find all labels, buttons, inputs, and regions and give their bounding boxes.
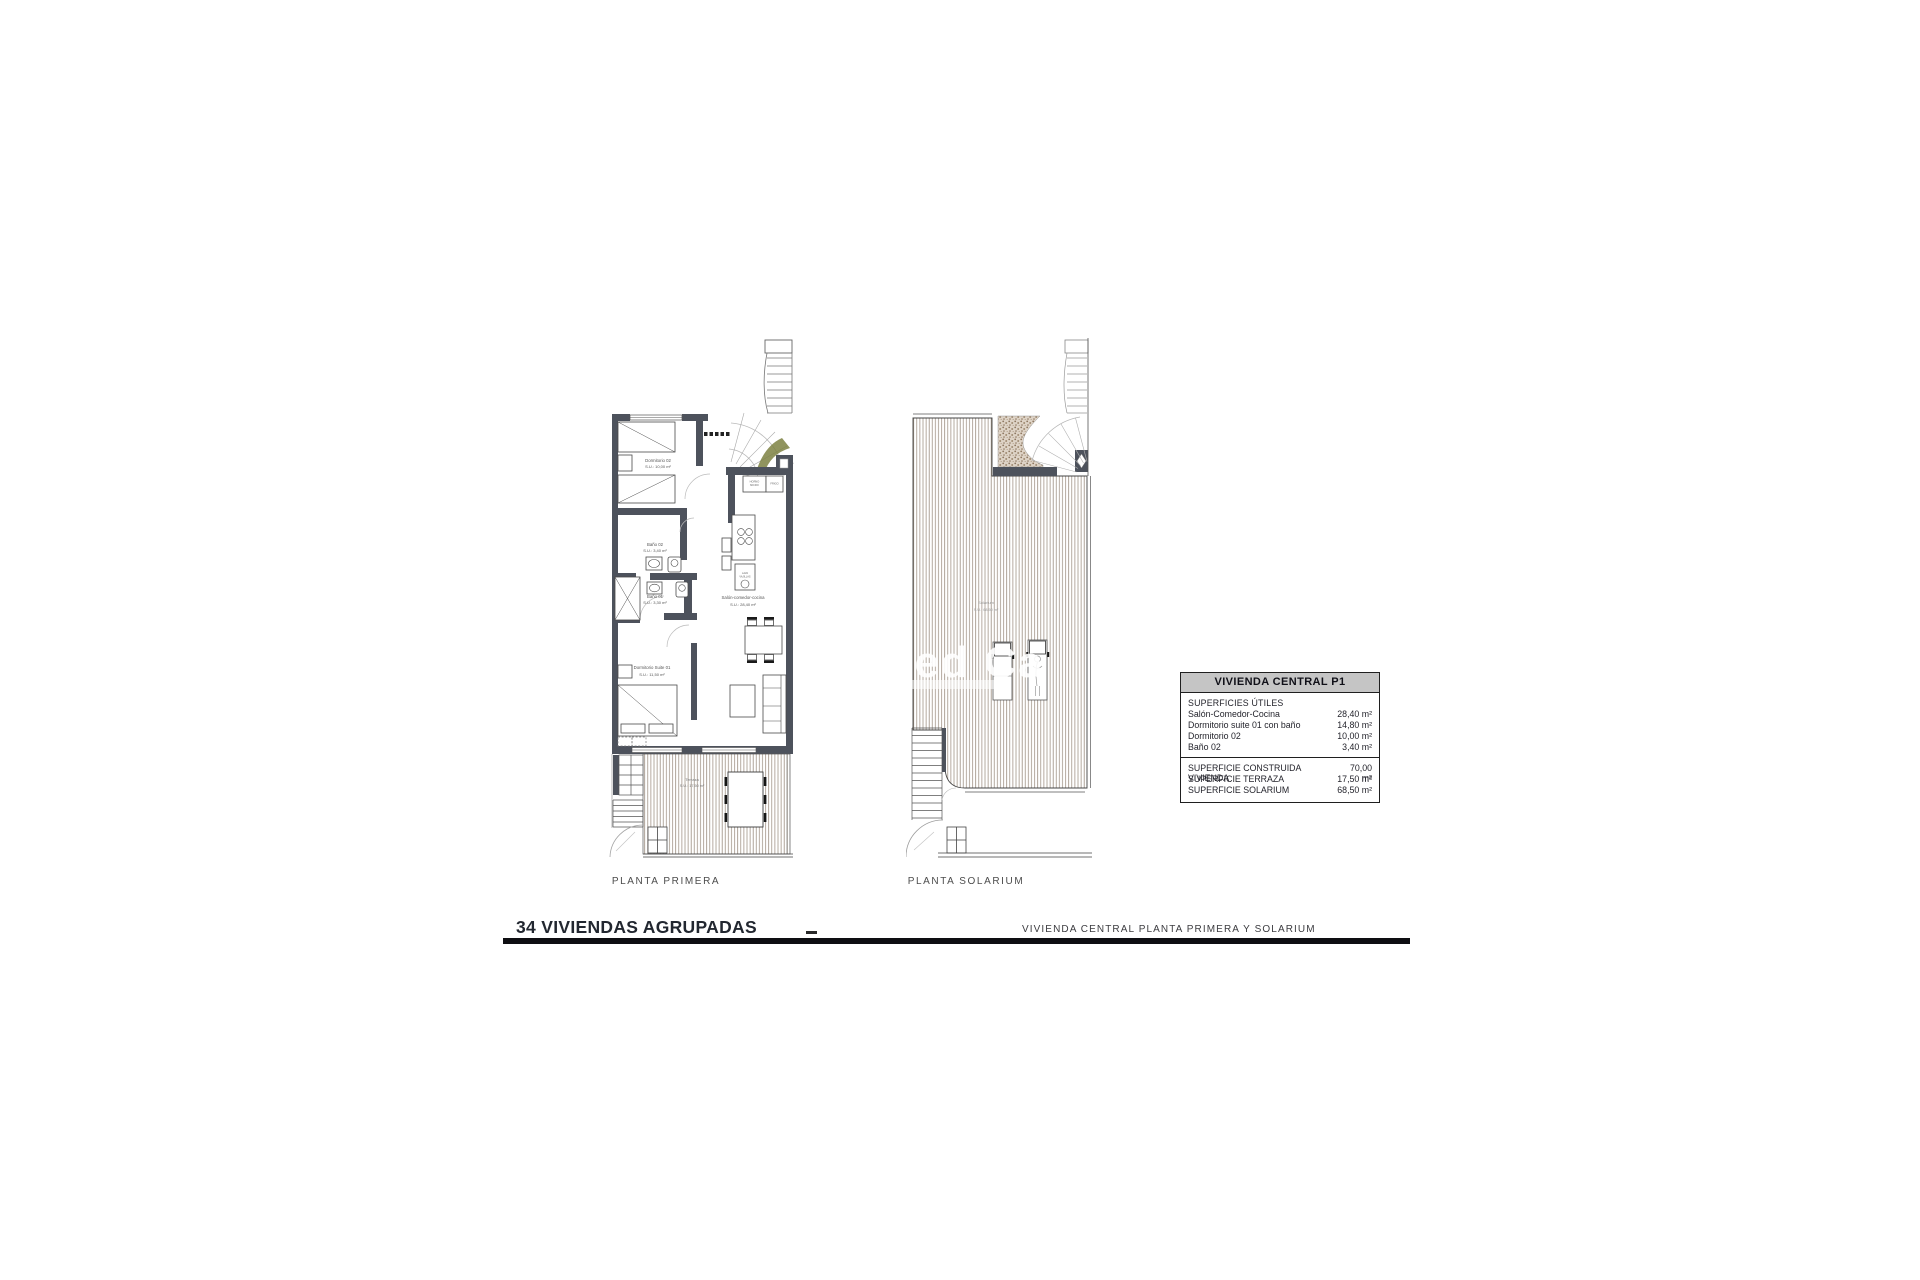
summary-table: VIVIENDA CENTRAL P1 SUPERFICIES ÚTILES S…: [1180, 672, 1380, 803]
row-label: SUPERFICIE TERRAZA: [1188, 774, 1284, 784]
row-value: 3,40 m²: [1342, 742, 1372, 752]
bano02-area: S.U.: 3,40 m²: [643, 548, 667, 553]
skylight-box: [1075, 450, 1088, 472]
table-row: SUPERFICIE CONSTRUIDA VIVIENDA 70,00 m²: [1188, 763, 1372, 774]
entry-threshold: [704, 432, 730, 436]
table-divider: [1181, 757, 1379, 758]
terraza-area: S.U.: 17,50 m²: [680, 784, 705, 788]
cabinet-fridge-label: FRIGO: [770, 482, 778, 486]
title-rule: [503, 938, 1410, 944]
row-value: 28,40 m²: [1337, 709, 1372, 719]
landing-solarium: [906, 788, 1092, 857]
salon-area: S.U.: 28,40 m²: [730, 602, 756, 607]
row-value: 14,80 m²: [1337, 720, 1372, 730]
project-title: 34 VIVIENDAS AGRUPADAS: [516, 917, 757, 938]
bano01-label: Baño 01: [647, 594, 664, 599]
suite-label: Dormitorio Suite 01: [634, 665, 671, 670]
solarium-area: S.U.: 68,50 m²: [974, 608, 999, 612]
suite-area: S.U.: 11,50 m²: [639, 672, 665, 677]
bano02-label: Baño 02: [647, 542, 664, 547]
closet-inner: [780, 459, 788, 468]
summary-table-title: VIVIENDA CENTRAL P1: [1181, 673, 1379, 693]
sink-label-2: VAJILLAS: [739, 576, 751, 579]
table-row: Dormitorio suite 01 con baño 14,80 m²: [1188, 720, 1372, 731]
sheet-subtitle: VIVIENDA CENTRAL PLANTA PRIMERA Y SOLARI…: [1022, 924, 1316, 935]
caption-planta-solarium: PLANTA SOLARIUM: [856, 876, 1076, 887]
row-value: 10,00 m²: [1337, 731, 1372, 741]
cabinet-oven-label-1: HORNO: [750, 480, 760, 484]
plan-first-floor: Dormitorio 02 S.U.: 10,00 m² Baño 02 S.U…: [606, 336, 816, 882]
table-row: Baño 02 3,40 m²: [1188, 742, 1372, 753]
row-label: Baño 02: [1188, 742, 1221, 752]
row-label: SUPERFICIE SOLARIUM: [1188, 785, 1289, 795]
caption-planta-primera: PLANTA PRIMERA: [556, 876, 776, 887]
drawing-sheet: Dormitorio 02 S.U.: 10,00 m² Baño 02 S.U…: [0, 0, 1920, 1280]
dormitorio02-label: Dormitorio 02: [645, 458, 671, 463]
plan-solarium: Solarium S.U.: 68,50 m²: [906, 336, 1126, 882]
table-row: Salón-Comedor-Cocina 28,40 m²: [1188, 709, 1372, 720]
title-dash: [806, 931, 817, 934]
row-label: Dormitorio suite 01 con baño: [1188, 720, 1300, 730]
bano01-area: S.U.: 3,30 m²: [643, 600, 667, 605]
terrace: [610, 754, 793, 857]
window-dormitorio02: [630, 415, 682, 420]
cabinet-oven-label-2: MICRO: [750, 483, 759, 487]
stair-lower-solarium: [912, 728, 946, 820]
table-section-header: SUPERFICIES ÚTILES: [1188, 698, 1372, 709]
table-row: Dormitorio 02 10,00 m²: [1188, 731, 1372, 742]
table-row: SUPERFICIE TERRAZA 17,50 m²: [1188, 774, 1372, 785]
terraza-label: Terraza: [685, 777, 699, 782]
row-value: 68,50 m²: [1337, 785, 1372, 795]
dormitorio02-area: S.U.: 10,00 m²: [645, 464, 671, 469]
row-label: Dormitorio 02: [1188, 731, 1241, 741]
row-value: 17,50 m²: [1337, 774, 1372, 784]
salon-label: Salón-comedor-cocina: [722, 595, 766, 600]
watermark-subline: [893, 680, 1011, 689]
table-row: SUPERFICIE SOLARIUM 68,50 m²: [1188, 785, 1372, 796]
row-label: Salón-Comedor-Cocina: [1188, 709, 1280, 719]
wall-band-solarium: [993, 467, 1057, 476]
solarium-label: Solarium: [978, 600, 994, 605]
gravel-area: [998, 416, 1043, 467]
